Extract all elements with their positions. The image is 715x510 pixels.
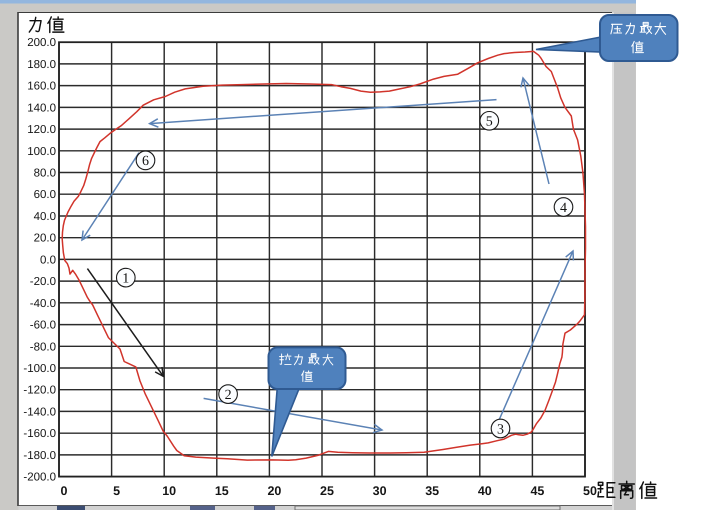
svg-text:10: 10 xyxy=(162,484,176,498)
svg-text:4: 4 xyxy=(560,201,567,216)
svg-text:30: 30 xyxy=(373,484,387,498)
svg-text:140.0: 140.0 xyxy=(27,102,56,114)
svg-text:1: 1 xyxy=(122,271,129,286)
svg-text:-100.0: -100.0 xyxy=(23,363,56,375)
svg-text:-200.0: -200.0 xyxy=(23,472,56,484)
svg-text:50: 50 xyxy=(583,484,597,498)
svg-text:60.0: 60.0 xyxy=(34,189,56,201)
svg-text:20: 20 xyxy=(267,484,281,498)
svg-text:-160.0: -160.0 xyxy=(23,428,56,440)
svg-text:25: 25 xyxy=(320,484,334,498)
svg-text:-120.0: -120.0 xyxy=(23,385,56,397)
svg-text:-140.0: -140.0 xyxy=(23,406,56,418)
svg-text:-60.0: -60.0 xyxy=(30,320,56,332)
svg-text:0: 0 xyxy=(61,484,68,498)
svg-text:6: 6 xyxy=(142,154,149,169)
svg-text:5: 5 xyxy=(486,115,493,130)
svg-text:15: 15 xyxy=(215,484,229,498)
svg-text:120.0: 120.0 xyxy=(27,124,56,136)
svg-text:40: 40 xyxy=(478,484,492,498)
svg-text:100.0: 100.0 xyxy=(27,146,56,158)
svg-text:0.0: 0.0 xyxy=(40,254,56,266)
svg-text:180.0: 180.0 xyxy=(27,59,56,71)
svg-text:-80.0: -80.0 xyxy=(30,341,56,353)
svg-text:35: 35 xyxy=(425,484,439,498)
svg-text:20.0: 20.0 xyxy=(34,233,56,245)
svg-text:2: 2 xyxy=(225,388,232,403)
svg-text:-20.0: -20.0 xyxy=(30,276,56,288)
svg-text:-180.0: -180.0 xyxy=(23,450,56,462)
svg-text:160.0: 160.0 xyxy=(27,81,56,93)
svg-text:3: 3 xyxy=(497,422,504,437)
svg-text:45: 45 xyxy=(530,484,544,498)
svg-text:5: 5 xyxy=(113,484,120,498)
svg-text:40.0: 40.0 xyxy=(34,211,56,223)
svg-text:80.0: 80.0 xyxy=(34,168,56,180)
svg-text:200.0: 200.0 xyxy=(27,37,56,49)
svg-text:-40.0: -40.0 xyxy=(30,298,56,310)
